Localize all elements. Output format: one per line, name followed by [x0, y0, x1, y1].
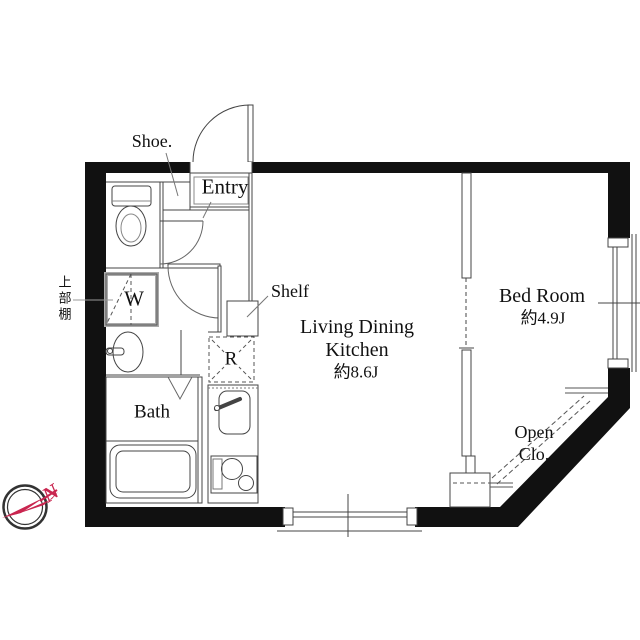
upper-shelf-label: 上部棚 [58, 275, 71, 323]
ldk-size-label: 約8.6J [334, 364, 379, 381]
shelf-box [227, 301, 258, 336]
shelf-label: Shelf [271, 282, 309, 300]
toilet-door [160, 221, 203, 264]
washer-label: W [124, 289, 144, 310]
refrigerator-label: R [225, 350, 238, 369]
toilet-room [106, 182, 168, 268]
open-closet-label-line1: Open [515, 423, 554, 441]
bedroom-label: Bed Room [499, 286, 585, 306]
entry-label: Entry [202, 177, 249, 198]
washroom-east-wall [218, 266, 221, 332]
toilet-icon [112, 186, 151, 246]
shoe-cabinet [163, 182, 190, 210]
compass-n-label: N [37, 478, 64, 507]
washroom-door [168, 264, 220, 318]
bedroom-window [598, 234, 640, 372]
wash-basin-icon [106, 332, 143, 372]
ldk-west-wall [249, 173, 252, 301]
floorplan-image: N Shoe. Entry Shelf Living Dining Kitche… [0, 0, 640, 640]
bath-room [106, 377, 202, 503]
ldk-label-line2: Kitchen [325, 340, 388, 360]
shoe-label: Shoe. [132, 132, 173, 150]
bedroom-size-label: 約4.9J [521, 310, 566, 327]
bath-label: Bath [134, 403, 170, 422]
ldk-window [277, 494, 422, 537]
compass-icon: N [2, 478, 64, 528]
entry-door [190, 105, 253, 173]
ldk-label-line1: Living Dining [300, 317, 414, 337]
bedroom-partition [450, 173, 490, 507]
kitchen-counter [208, 385, 258, 503]
open-closet-label-line2: Clo. [519, 445, 550, 463]
